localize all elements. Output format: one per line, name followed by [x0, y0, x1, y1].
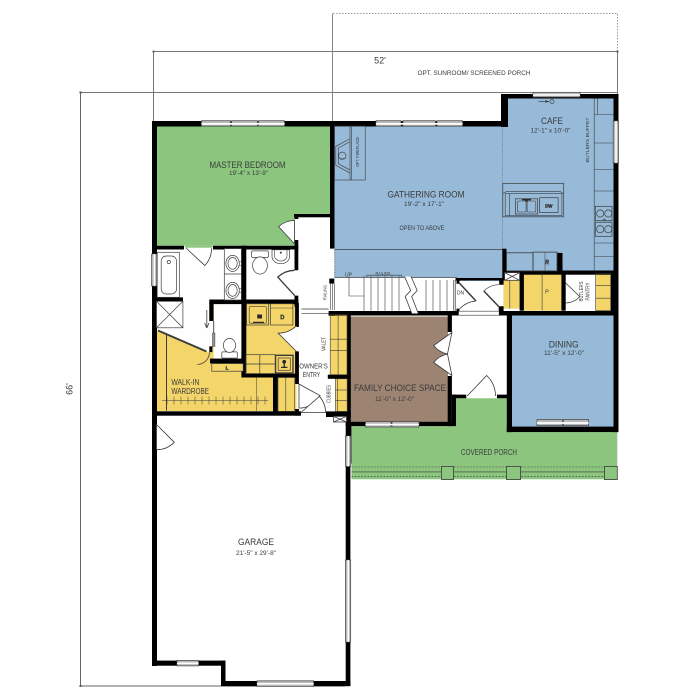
svg-text:BUTLERS: BUTLERS [579, 281, 585, 302]
svg-text:ENTRY: ENTRY [303, 370, 321, 379]
svg-text:GATHERING ROOM: GATHERING ROOM [388, 190, 465, 201]
svg-text:PANTRY: PANTRY [586, 282, 592, 301]
svg-text:DN: DN [457, 291, 465, 297]
svg-text:12'-1" x 10'-0": 12'-1" x 10'-0" [531, 128, 571, 135]
svg-text:COVERED PORCH: COVERED PORCH [461, 447, 517, 457]
svg-text:WALK-IN: WALK-IN [171, 378, 199, 387]
svg-text:VALET: VALET [321, 337, 327, 351]
svg-text:BUTLERS BUFFET: BUTLERS BUFFET [585, 117, 590, 162]
svg-text:OPT. SUNROOM/ SCREENED PORCH: OPT. SUNROOM/ SCREENED PORCH [418, 70, 531, 77]
svg-text:OPT. FIREPLACE: OPT. FIREPLACE [355, 137, 360, 167]
svg-text:UP: UP [345, 273, 353, 279]
svg-text:L: L [226, 366, 229, 372]
svg-text:66': 66' [65, 383, 75, 395]
svg-text:WARDROBE: WARDROBE [171, 387, 209, 396]
svg-text:11'-5" x 12'-0": 11'-5" x 12'-0" [544, 350, 584, 357]
svg-text:OPEN TO ABOVE: OPEN TO ABOVE [400, 225, 445, 232]
svg-text:FAMILY CHOICE SPACE: FAMILY CHOICE SPACE [354, 383, 446, 394]
svg-text:CAFE: CAFE [541, 116, 563, 127]
svg-text:19'-2" x 17'-1": 19'-2" x 17'-1" [404, 201, 444, 208]
svg-text:11'-0" x 12'-0": 11'-0" x 12'-0" [375, 396, 414, 403]
svg-text:RAILING: RAILING [376, 271, 391, 276]
svg-text:P: P [545, 290, 549, 296]
svg-text:D: D [280, 315, 284, 321]
svg-text:21'-5" x 29'-8": 21'-5" x 29'-8" [236, 550, 276, 557]
svg-text:RAILING: RAILING [322, 285, 327, 300]
svg-text:52': 52' [374, 56, 386, 66]
svg-text:DW: DW [545, 204, 552, 209]
svg-text:GARAGE: GARAGE [238, 537, 274, 548]
svg-text:R: R [545, 260, 549, 266]
svg-text:DINING: DINING [549, 340, 579, 351]
svg-text:19'-4" x 13'-9": 19'-4" x 13'-9" [229, 170, 268, 177]
svg-text:CUBBIES: CUBBIES [326, 384, 332, 403]
